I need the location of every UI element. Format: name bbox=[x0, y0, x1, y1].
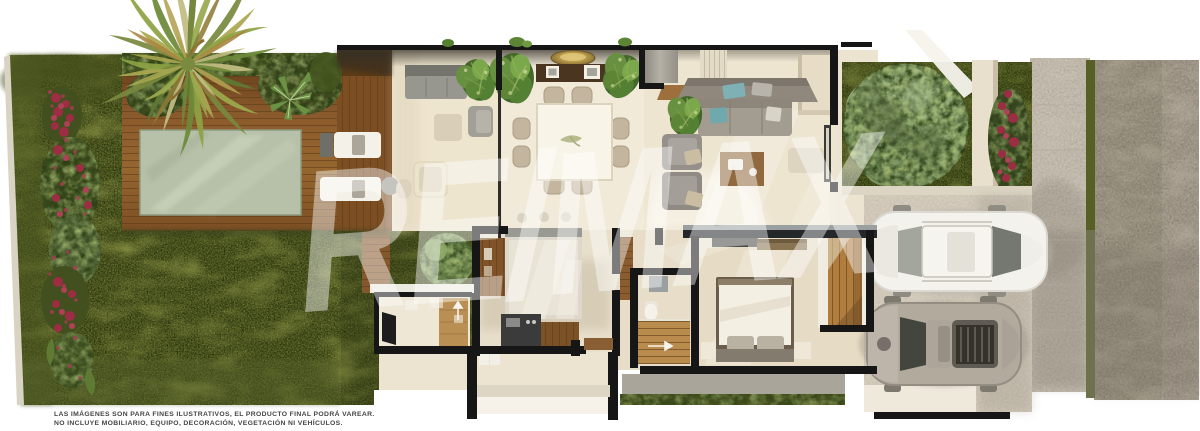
svg-text:NO INCLUYE MOBILIARIO, EQUIPO,: NO INCLUYE MOBILIARIO, EQUIPO, DECORACIÓ… bbox=[54, 418, 343, 427]
svg-text:LAS IMÁGENES SON PARA FINES IL: LAS IMÁGENES SON PARA FINES ILUSTRATIVOS… bbox=[54, 409, 375, 418]
svg-text:RE/MAX: RE/MAX bbox=[290, 88, 899, 355]
